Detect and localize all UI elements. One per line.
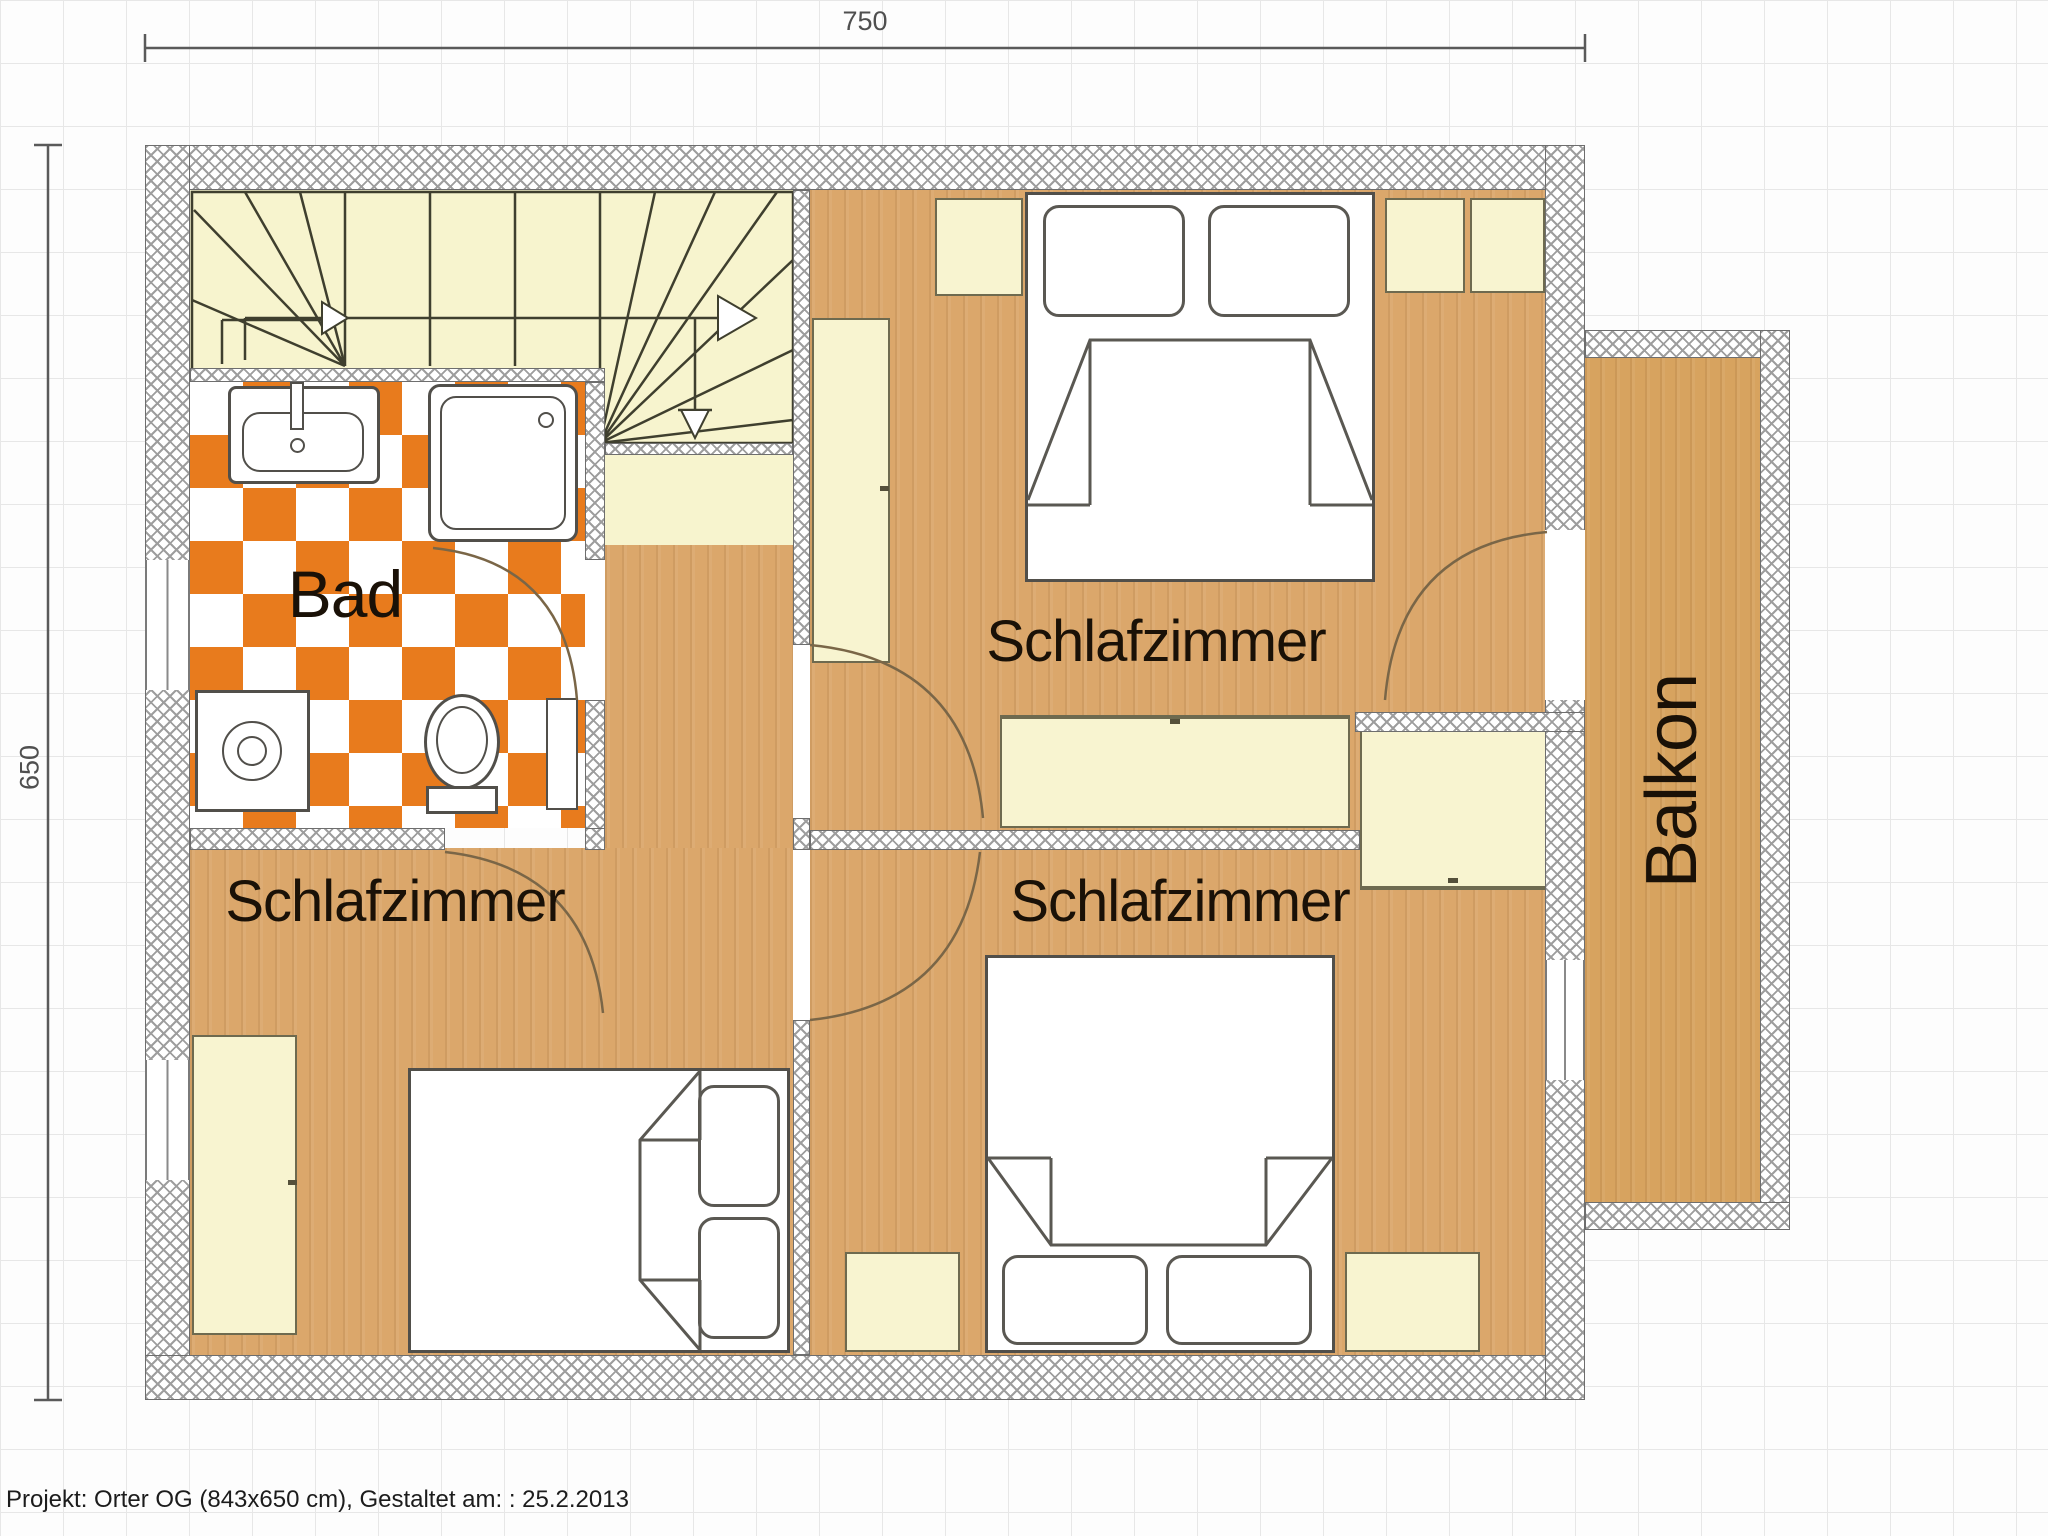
pillow [1208,205,1350,317]
pillow [1043,205,1185,317]
bedroom-divider-wall-right [1355,712,1585,732]
long-wardrobe [1000,715,1350,828]
washing-machine-drum [237,736,267,766]
room-label-bedroom-top-right: Schlafzimmer [856,608,1456,675]
outer-wall-left [145,145,190,1400]
bathroom-right-wall-lower [585,700,605,830]
outer-wall-top [145,145,1585,190]
wardrobe-handle [1170,719,1180,724]
balcony-wall-right [1760,330,1790,1230]
hallway-floor [605,545,793,850]
balcony-wall-bottom [1585,1202,1790,1230]
double-bed-top-right [1025,192,1375,582]
nightstand [1345,1252,1480,1352]
hallway-right-wall-lower [793,1020,810,1355]
pillow [1002,1255,1148,1345]
double-bed-bottom-left [408,1068,790,1353]
window-bathroom-left [145,560,190,690]
wall-corner-stub [585,828,605,850]
door-opening-bedroom-top-right [793,645,810,818]
wardrobe [192,1035,297,1335]
room-label-balcony: Balkon [1631,611,1713,951]
room-label-bedroom-bottom-right: Schlafzimmer [880,868,1480,935]
wardrobe-handle [880,486,889,491]
stair-landing-floor [605,445,793,545]
shower-drain [538,412,554,428]
outer-wall-bottom [145,1355,1585,1400]
nightstand [935,198,1023,296]
door-opening-bedroom-bottom-right [793,850,810,1020]
room-label-bath: Bad [230,556,460,632]
outer-wall-right [1545,145,1585,1400]
wardrobe-handle [288,1180,297,1185]
pillow [698,1217,780,1339]
pillow [698,1085,780,1207]
hallway-right-wall-mid [793,818,810,850]
door-opening-bathroom [585,560,605,700]
bathroom-bottom-wall [190,828,445,850]
bathroom-top-wall [190,368,605,382]
hallway-right-wall-upper [793,190,810,645]
nightstand [1385,198,1465,293]
toilet-tank [426,786,498,814]
wardrobe [1360,730,1550,890]
nightstand [845,1252,960,1352]
sink-tap [290,382,304,430]
balcony-door-opening [1545,530,1585,700]
dimension-left-label: 650 [15,698,46,838]
stair-landing-edge [605,443,793,455]
toilet-seat [436,706,488,774]
bathroom-right-wall-upper [585,382,605,560]
corner-cabinet [1470,198,1545,293]
double-bed-bottom-right [985,955,1335,1353]
sink-drain [290,438,305,453]
project-info-text: Projekt: Orter OG (843x650 cm), Gestalte… [6,1486,629,1514]
room-label-bedroom-bottom-left: Schlafzimmer [145,868,645,935]
window-bedroom-left [145,1060,190,1180]
dimension-top-label: 750 [795,6,935,37]
bathroom-door-leaf [546,698,578,810]
bedroom-divider-wall-left [810,830,1360,850]
window-bedroom-bottom-right [1545,960,1585,1080]
pillow [1166,1255,1312,1345]
floor-plan-canvas: 750 650 Bad Schlafzimmer Schlafzimmer Sc… [0,0,2048,1536]
